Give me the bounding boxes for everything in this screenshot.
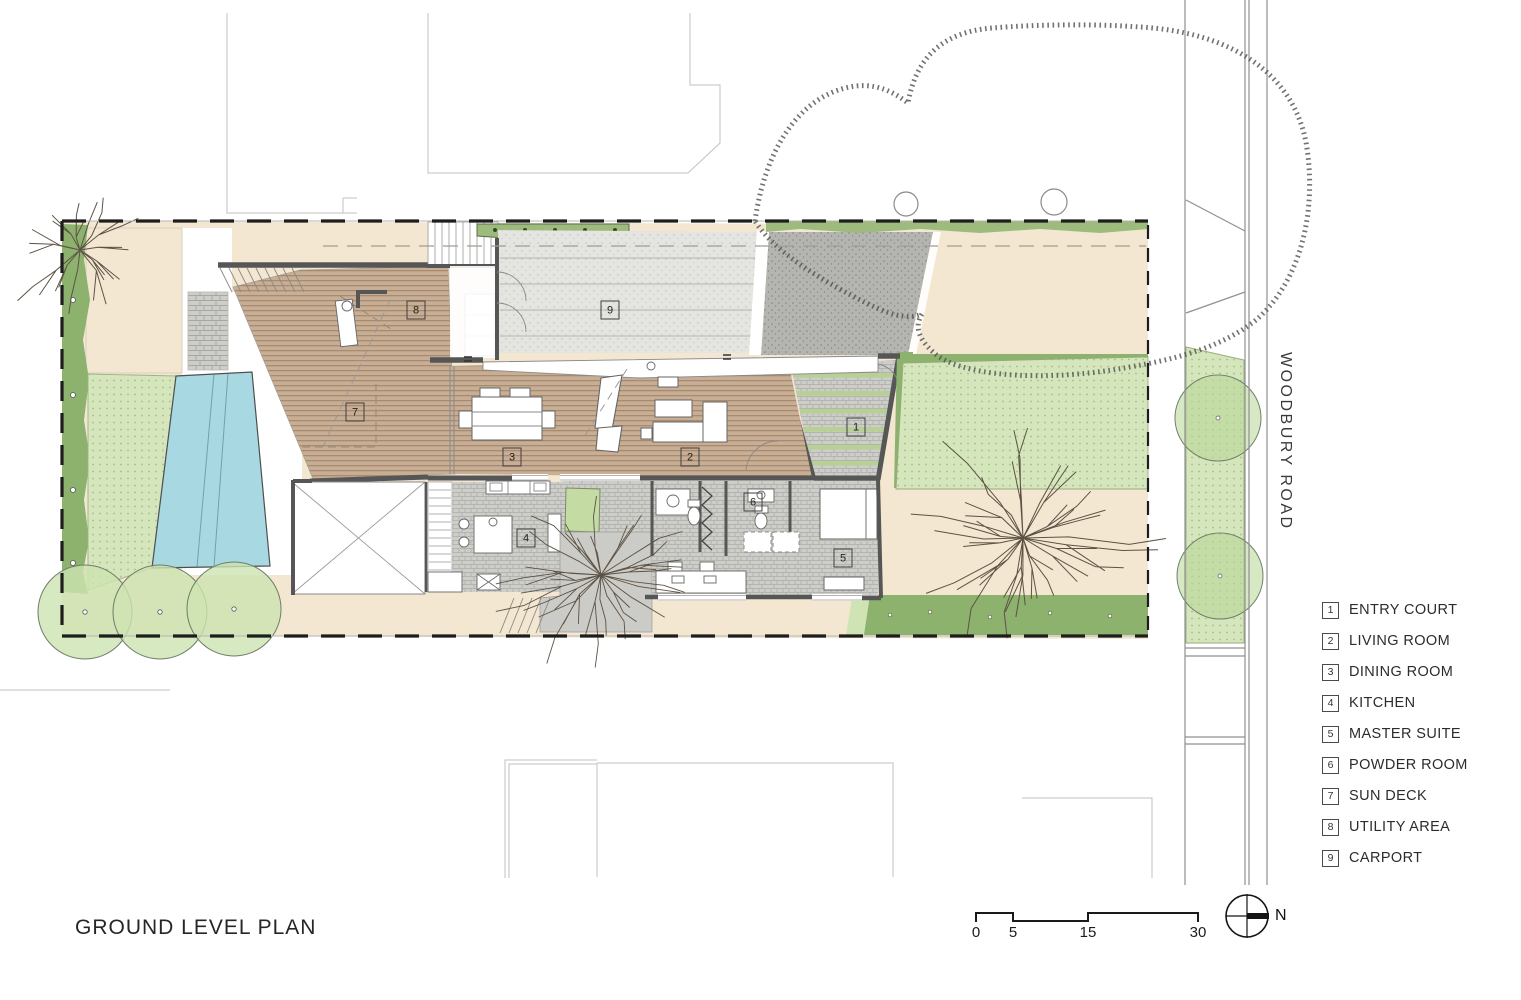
carport-area: [497, 230, 765, 360]
legend-item-2: 2LIVING ROOM: [1322, 633, 1468, 649]
legend: 1ENTRY COURT2LIVING ROOM3DINING ROOM4KIT…: [1322, 602, 1468, 881]
north-label: N: [1275, 907, 1287, 925]
legend-label: POWDER ROOM: [1349, 757, 1468, 773]
road-verge-planting: [1175, 347, 1263, 643]
road-name-label: WOODBURY ROAD: [1276, 352, 1294, 531]
room-marker-6: 6: [744, 493, 763, 512]
legend-number-box: 5: [1322, 726, 1339, 743]
legend-number-box: 4: [1322, 695, 1339, 712]
room-marker-2: 2: [681, 448, 700, 467]
legend-item-5: 5MASTER SUITE: [1322, 726, 1468, 742]
north-arrow: [1226, 894, 1269, 938]
legend-number-box: 9: [1322, 850, 1339, 867]
scale-tick-30: 30: [1190, 924, 1207, 941]
scale-tick-15: 15: [1080, 924, 1097, 941]
legend-label: KITCHEN: [1349, 695, 1415, 711]
room-marker-4: 4: [517, 529, 536, 548]
room-marker-1: 1: [847, 418, 866, 437]
legend-number-box: 8: [1322, 819, 1339, 836]
legend-label: UTILITY AREA: [1349, 819, 1450, 835]
legend-item-9: 9CARPORT: [1322, 850, 1468, 866]
boundary-post: [894, 192, 918, 216]
south-hedge: [846, 595, 1148, 635]
room-marker-8: 8: [407, 301, 426, 320]
room-marker-9: 9: [601, 301, 620, 320]
legend-label: MASTER SUITE: [1349, 726, 1461, 742]
room-marker-3: 3: [503, 448, 522, 467]
room-marker-7: 7: [346, 403, 365, 422]
legend-item-4: 4KITCHEN: [1322, 695, 1468, 711]
scale-tick-0: 0: [972, 924, 980, 941]
legend-item-1: 1ENTRY COURT: [1322, 602, 1468, 618]
street-trees-southwest: [38, 562, 281, 659]
legend-number-box: 3: [1322, 664, 1339, 681]
legend-label: CARPORT: [1349, 850, 1422, 866]
legend-label: SUN DECK: [1349, 788, 1427, 804]
legend-label: LIVING ROOM: [1349, 633, 1450, 649]
legend-label: DINING ROOM: [1349, 664, 1453, 680]
scale-tick-5: 5: [1009, 924, 1017, 941]
legend-number-box: 6: [1322, 757, 1339, 774]
window-lines: [512, 474, 640, 481]
boundary-post: [1041, 189, 1067, 215]
legend-item-8: 8UTILITY AREA: [1322, 819, 1468, 835]
legend-item-7: 7SUN DECK: [1322, 788, 1468, 804]
drawing-title: GROUND LEVEL PLAN: [75, 916, 316, 940]
legend-number-box: 1: [1322, 602, 1339, 619]
paver-path: [188, 292, 228, 370]
room-marker-5: 5: [834, 549, 853, 568]
legend-label: ENTRY COURT: [1349, 602, 1457, 618]
legend-item-3: 3DINING ROOM: [1322, 664, 1468, 680]
legend-item-6: 6POWDER ROOM: [1322, 757, 1468, 773]
scale-bar: [976, 913, 1198, 922]
legend-number-box: 7: [1322, 788, 1339, 805]
floor-plan-sheet: GROUND LEVEL PLAN WOODBURY ROAD N 051530…: [0, 0, 1521, 1000]
legend-number-box: 2: [1322, 633, 1339, 650]
